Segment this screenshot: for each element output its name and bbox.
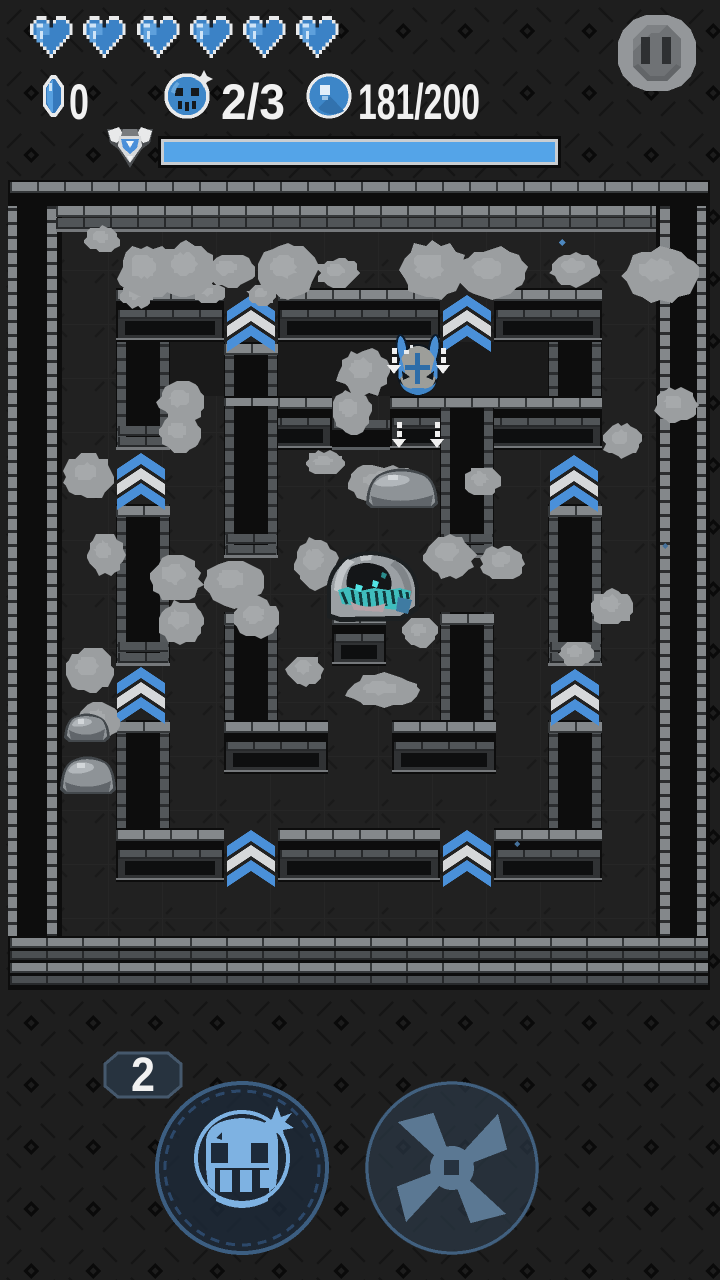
svg-text:0: 0 bbox=[69, 74, 89, 130]
svg-text:181/200: 181/200 bbox=[358, 74, 480, 130]
svg-text:2/3: 2/3 bbox=[221, 74, 285, 130]
svg-text:2: 2 bbox=[131, 1049, 155, 1102]
